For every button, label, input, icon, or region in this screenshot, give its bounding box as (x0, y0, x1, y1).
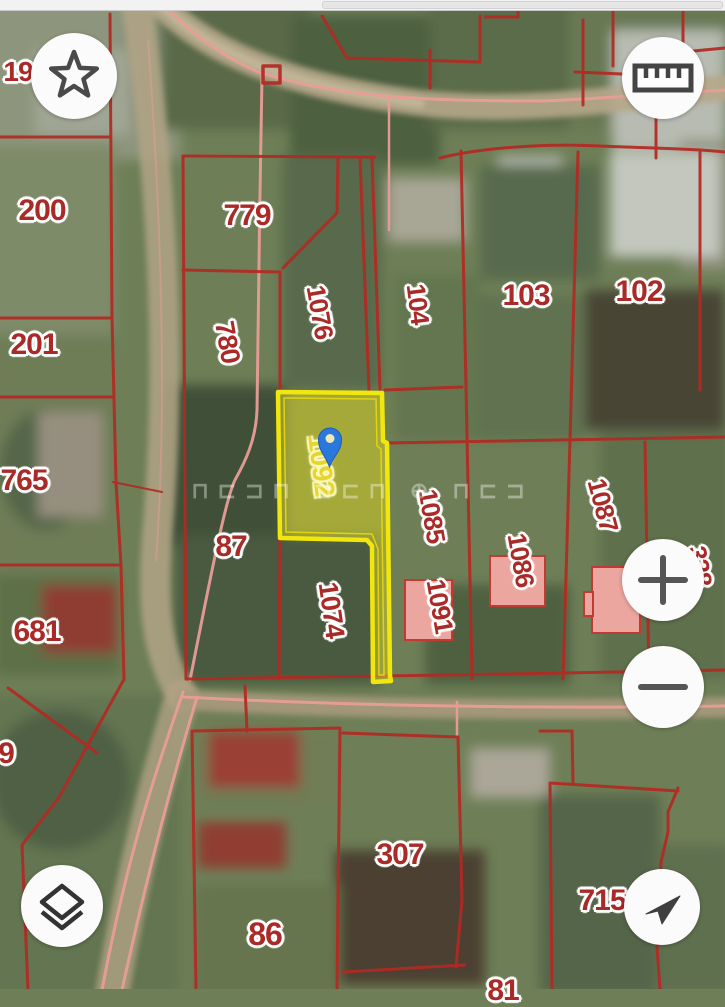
status-bar (0, 0, 725, 11)
layers-button[interactable] (21, 865, 103, 947)
plus-icon (637, 554, 689, 606)
favorites-button[interactable] (31, 33, 117, 119)
layers-icon (36, 881, 88, 931)
minus-icon (637, 661, 689, 713)
navigation-arrow-icon (640, 885, 684, 929)
zoom-in-button[interactable] (622, 539, 704, 621)
map-canvas[interactable]: 2002017656819197797801076104103102108510… (0, 0, 725, 989)
status-bar-field (322, 1, 723, 9)
my-location-button[interactable] (624, 869, 700, 945)
ruler-icon (631, 57, 695, 99)
measure-button[interactable] (622, 37, 704, 119)
star-icon (46, 48, 102, 104)
map-pin-icon[interactable] (0, 0, 725, 989)
zoom-out-button[interactable] (622, 646, 704, 728)
